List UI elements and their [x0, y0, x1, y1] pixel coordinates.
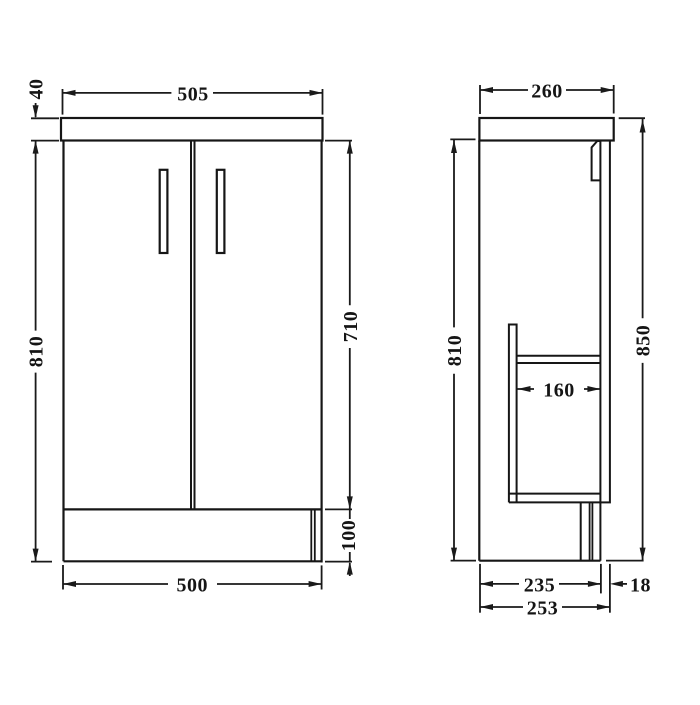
svg-text:810: 810 [444, 335, 466, 367]
svg-text:40: 40 [26, 79, 48, 100]
svg-text:253: 253 [527, 598, 559, 620]
svg-text:260: 260 [531, 81, 563, 103]
svg-text:235: 235 [524, 574, 556, 596]
svg-text:850: 850 [633, 325, 655, 357]
svg-text:710: 710 [340, 311, 362, 343]
svg-text:505: 505 [177, 84, 209, 106]
svg-text:18: 18 [630, 574, 651, 596]
svg-text:100: 100 [338, 520, 360, 552]
svg-text:810: 810 [26, 336, 48, 368]
svg-text:500: 500 [177, 575, 209, 597]
svg-text:160: 160 [543, 380, 575, 402]
